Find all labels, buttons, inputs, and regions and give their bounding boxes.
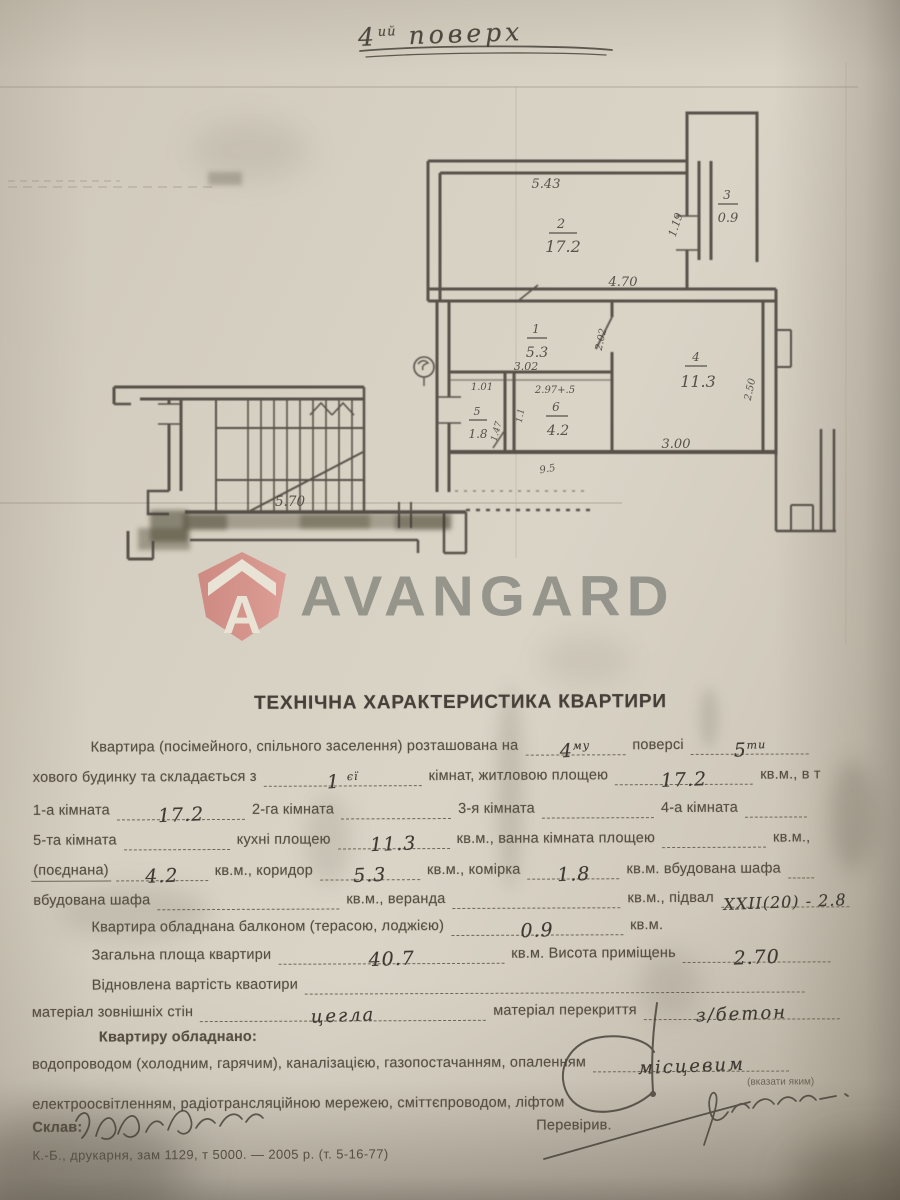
blank-room5 (124, 831, 230, 850)
label-equipped: Квартиру обладнано: (97, 1027, 259, 1048)
form-line-basement: вбудована шафа кв.м., веранда кв.м., під… (31, 887, 854, 911)
handwritten-combined: 4.2 (145, 869, 179, 884)
handwritten-room1: 17.2 (158, 807, 205, 823)
form-line-combined: (поєднана) 4.2 кв.м., коридор 5.3 кв.м.,… (31, 857, 819, 881)
technical-form: ТЕХНІЧНА ХАРАКТЕРИСТИКА КВАРТИРИ Квартир… (0, 0, 900, 1200)
label: кв.м., підвал (625, 888, 715, 908)
handwritten-floor: 4му (560, 739, 591, 759)
blank-kitchen: 11.3 (338, 830, 450, 849)
label: кв.м., коридор (213, 861, 315, 881)
label: 4-а кімната (659, 798, 740, 818)
blank-living-area: 17.2 (615, 766, 753, 786)
label: Квартира (посімейного, спільного заселен… (89, 736, 521, 758)
label: водопроводом (холодним, гарячим), каналі… (30, 1052, 588, 1074)
label: Загальна площа квартири (90, 945, 274, 966)
form-line-materials: матеріал зовнішніх стін цегла матеріал п… (30, 999, 845, 1023)
floor-note-word: поверх (408, 17, 524, 50)
label-compiled: Склав: (30, 1118, 84, 1138)
handwritten-basement: ХХІІ(20) - 2.8 (723, 893, 847, 912)
blank-ceiling-material: з/бетон (644, 1000, 840, 1020)
form-title: ТЕХНІЧНА ХАРАКТЕРИСТИКА КВАРТИРИ (20, 690, 900, 716)
handwritten-balcony: 0.9 (520, 923, 554, 938)
label: електроосвітленням, радіотрансляційною м… (30, 1092, 566, 1114)
handwritten-room-count: 1 єї (326, 770, 359, 790)
label: кв.м., (771, 827, 812, 847)
floor-note-suffix: ий (378, 24, 397, 40)
label: кв.м. Висота приміщень (509, 943, 678, 964)
label-checked: Перевірив. (534, 1115, 614, 1135)
form-line-utilities2: електроосвітленням, радіотрансляційною м… (30, 1092, 566, 1114)
blank-corridor: 5.3 (320, 861, 420, 880)
label: 5-та кімната (31, 830, 119, 850)
handwritten-corridor: 5.3 (353, 868, 387, 883)
form-line-checked-by: Перевірив. (534, 1115, 614, 1135)
blank-floor: 4му (525, 736, 625, 755)
label: вбудована шафа (31, 890, 152, 911)
blank-room-count: 1 єї (264, 767, 422, 787)
label: кухні площею (235, 830, 333, 850)
blank-room1: 17.2 (117, 801, 245, 821)
label: кв.м., комірка (425, 860, 523, 880)
form-line-compiled-by: Склав: (30, 1118, 84, 1138)
handwritten-storeys: 5ти (733, 738, 766, 758)
label: кв.м. вбудована шафа (624, 859, 782, 880)
note-specify: (вказати яким) (747, 1076, 814, 1087)
form-line-rooms: 1-а кімната 17.2 2-га кімната 3-я кімнат… (31, 797, 812, 820)
handwritten-total-area: 40.7 (368, 951, 415, 967)
blank-heating-type: місцевим (593, 1053, 789, 1073)
handwritten-pantry: 1.8 (557, 867, 591, 882)
blank-combined: 4.2 (116, 862, 208, 881)
label: кв.м., в т (758, 764, 823, 784)
blank-height: 2.70 (683, 943, 831, 963)
handwritten-kitchen: 11.3 (370, 836, 417, 852)
floor-note-number: 4 (358, 22, 379, 52)
form-line-value: Відновлена вартість кваотири (90, 972, 810, 995)
blank-value (305, 973, 805, 994)
label: 1-а кімната (31, 800, 112, 820)
blank-veranda (452, 889, 620, 909)
blank-room4 (745, 798, 807, 817)
label: 2-га кімната (250, 799, 336, 819)
blank-room2 (341, 800, 451, 819)
floor-note: 4ий поверх (358, 17, 524, 52)
blank-total-area: 40.7 (278, 945, 504, 965)
label-combined: (поєднана) (31, 860, 111, 881)
blank-walls-material: цегла (200, 1002, 486, 1022)
blank-closet (788, 859, 814, 878)
form-line-location: Квартира (посімейного, спільного заселен… (89, 734, 814, 757)
handwritten-walls-material: цегла (311, 1008, 376, 1025)
handwritten-height: 2.70 (733, 950, 780, 966)
handwritten-heating-type: місцевим (637, 1058, 744, 1076)
label: кв.м. (628, 915, 665, 935)
label: поверсі (630, 735, 686, 755)
form-line-equipped-heading: Квартиру обладнано: (97, 1027, 259, 1048)
label: кімнат, житловою площею (427, 765, 611, 786)
blank-basement: ХХІІ(20) - 2.8 (721, 888, 849, 908)
label: хового будинку та складається з (31, 767, 259, 788)
blank-balcony: 0.9 (451, 916, 623, 936)
label: Квартира обладнана балконом (терасою, ло… (89, 916, 446, 938)
label: кв.м., ванна кімната площею (455, 828, 657, 849)
form-line-balcony: Квартира обладнана балконом (терасою, ло… (89, 915, 665, 938)
document-photo: 4ий поверх A AVANGARD ТЕХНІЧНА ХАРАКТЕРИ… (0, 0, 900, 1200)
handwritten-living-area: 17.2 (661, 772, 708, 788)
form-line-composition: хового будинку та складається з 1 єї кім… (31, 764, 823, 787)
label: 3-я кімната (456, 799, 537, 819)
print-footer: К.-Б., друкарня, зам 1129, т 5000. — 200… (32, 1146, 388, 1163)
blank-closet2 (157, 890, 339, 910)
blank-bathroom (662, 829, 766, 848)
blank-room3 (542, 799, 654, 818)
form-line-kitchen: 5-та кімната кухні площею 11.3 кв.м., ва… (31, 827, 812, 850)
handwritten-ceiling-material: з/бетон (696, 1006, 788, 1024)
label: матеріал зовнішніх стін (30, 1002, 196, 1023)
form-line-utilities: водопроводом (холодним, гарячим), каналі… (30, 1052, 794, 1075)
label: матеріал перекриття (491, 1000, 639, 1021)
label: кв.м., веранда (344, 889, 447, 909)
label: Відновлена вартість кваотири (90, 975, 300, 996)
form-line-total-area: Загальна площа квартири 40.7 кв.м. Висот… (90, 942, 836, 965)
blank-pantry: 1.8 (527, 860, 619, 879)
blank-storeys: 5ти (691, 735, 809, 755)
